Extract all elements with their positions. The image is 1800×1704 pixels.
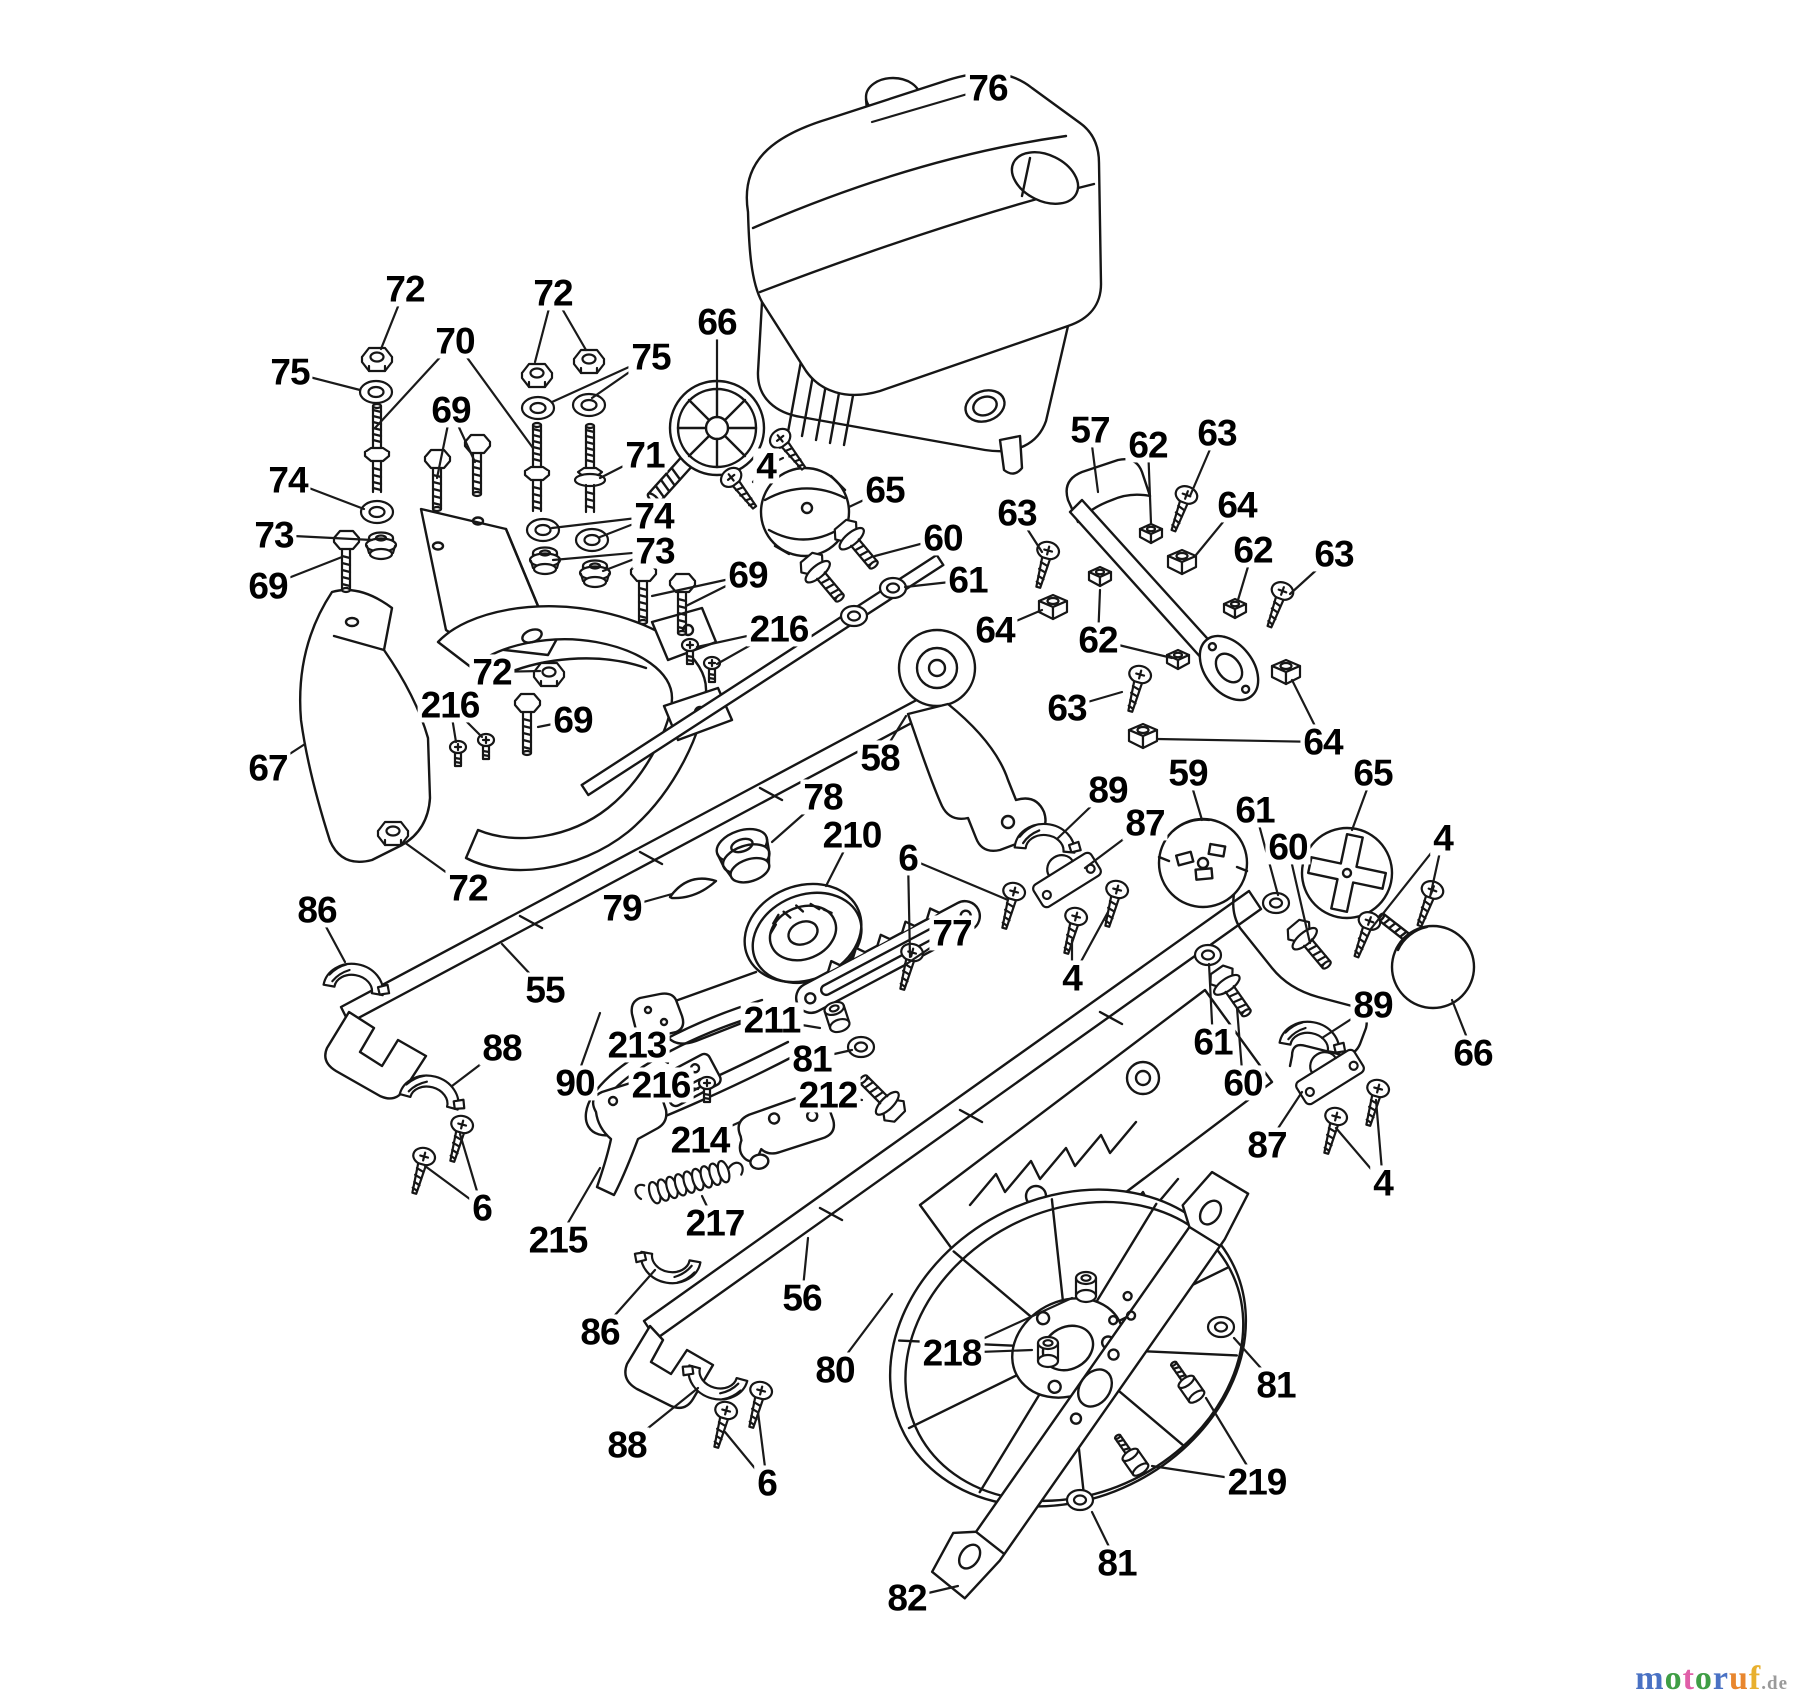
part-label-75: 75 bbox=[267, 354, 312, 389]
part-label-89: 89 bbox=[1350, 987, 1395, 1022]
sqnut64-glyph bbox=[1039, 595, 1067, 619]
part-label-6: 6 bbox=[469, 1190, 495, 1225]
screw-glyph bbox=[1358, 1077, 1391, 1128]
rivet-glyph bbox=[704, 657, 720, 682]
watermark-letter: t bbox=[1683, 1660, 1695, 1697]
part-label-63: 63 bbox=[994, 495, 1039, 530]
sqnut64-glyph bbox=[1272, 660, 1300, 684]
washer_s-glyph bbox=[1067, 1490, 1093, 1510]
grommet-glyph bbox=[366, 533, 396, 560]
watermark-letter: o bbox=[1695, 1660, 1713, 1697]
part-label-72: 72 bbox=[445, 870, 490, 905]
sqnut64-glyph bbox=[1168, 550, 1196, 574]
part-label-76: 76 bbox=[965, 70, 1010, 105]
part-label-73: 73 bbox=[632, 533, 677, 568]
part-label-89: 89 bbox=[1085, 772, 1130, 807]
part-label-66: 66 bbox=[1450, 1035, 1495, 1070]
rivet-glyph bbox=[450, 741, 466, 766]
part-label-64: 64 bbox=[972, 612, 1017, 647]
part-label-72: 72 bbox=[382, 271, 427, 306]
watermark-letter: r bbox=[1713, 1660, 1729, 1697]
sqnut64-glyph bbox=[1129, 724, 1157, 748]
hexnut-glyph bbox=[574, 350, 604, 373]
part-label-216: 216 bbox=[747, 611, 812, 646]
part-label-79: 79 bbox=[599, 890, 644, 925]
part-label-75: 75 bbox=[628, 339, 673, 374]
part-label-80: 80 bbox=[812, 1352, 857, 1387]
part-label-56: 56 bbox=[779, 1280, 824, 1315]
part-label-61: 61 bbox=[1232, 792, 1277, 827]
part-label-77: 77 bbox=[929, 915, 974, 950]
pulley-78 bbox=[713, 823, 779, 889]
part-label-86: 86 bbox=[294, 892, 339, 927]
leader-line bbox=[1157, 739, 1323, 742]
part-label-81: 81 bbox=[1253, 1367, 1298, 1402]
sqnut-glyph bbox=[1224, 599, 1246, 618]
screw-glyph bbox=[1120, 663, 1153, 714]
part-label-59: 59 bbox=[1165, 755, 1210, 790]
screw-glyph bbox=[1316, 1105, 1349, 1156]
part-label-88: 88 bbox=[479, 1030, 524, 1065]
part-label-86: 86 bbox=[577, 1314, 622, 1349]
part-label-61: 61 bbox=[1190, 1024, 1235, 1059]
part-label-211: 211 bbox=[741, 1002, 804, 1037]
part-label-87: 87 bbox=[1122, 805, 1167, 840]
part-label-87: 87 bbox=[1244, 1127, 1289, 1162]
part-label-212: 212 bbox=[796, 1077, 861, 1112]
part-label-70: 70 bbox=[432, 323, 477, 358]
spring-glyph bbox=[634, 1155, 745, 1209]
screw-glyph bbox=[1259, 579, 1296, 630]
part-label-73: 73 bbox=[251, 517, 296, 552]
flangebolt-glyph bbox=[1282, 915, 1340, 976]
part-label-66: 66 bbox=[694, 304, 739, 339]
part-label-65: 65 bbox=[862, 472, 907, 507]
stud71-glyph bbox=[575, 424, 605, 512]
part-label-219: 219 bbox=[1225, 1464, 1290, 1499]
grommet-glyph bbox=[580, 561, 610, 588]
part-label-64: 64 bbox=[1300, 724, 1345, 759]
watermark-letter: f bbox=[1749, 1660, 1761, 1697]
part-label-60: 60 bbox=[920, 520, 965, 555]
part-label-4: 4 bbox=[753, 448, 779, 483]
sqnut-glyph bbox=[1140, 524, 1162, 543]
washer_s-glyph bbox=[880, 578, 906, 598]
part-label-63: 63 bbox=[1044, 690, 1089, 725]
screw-glyph bbox=[1028, 539, 1061, 590]
part-label-218: 218 bbox=[920, 1335, 985, 1370]
hub-59 bbox=[1159, 819, 1247, 907]
part-label-72: 72 bbox=[530, 275, 575, 310]
screw-glyph bbox=[994, 880, 1027, 931]
screw-glyph bbox=[1409, 878, 1446, 929]
engine bbox=[747, 73, 1101, 474]
washer_s-glyph bbox=[841, 606, 867, 626]
hexbolt-glyph bbox=[465, 435, 490, 496]
part-label-60: 60 bbox=[1220, 1065, 1265, 1100]
screw-glyph bbox=[442, 1113, 475, 1164]
diagram-canvas: 7672757072756971747369747366465576263646… bbox=[0, 0, 1800, 1704]
watermark-suffix: .de bbox=[1761, 1673, 1788, 1694]
part-label-4: 4 bbox=[1430, 820, 1456, 855]
part-label-88: 88 bbox=[604, 1427, 649, 1462]
part-label-90: 90 bbox=[552, 1065, 597, 1100]
part-label-215: 215 bbox=[526, 1222, 591, 1257]
part-label-71: 71 bbox=[622, 437, 667, 472]
watermark-letter: o bbox=[1665, 1660, 1683, 1697]
part-label-4: 4 bbox=[1370, 1165, 1396, 1200]
hexbolt-glyph bbox=[631, 563, 656, 624]
part-label-69: 69 bbox=[550, 702, 595, 737]
washer-glyph bbox=[576, 529, 608, 551]
clamp-glyph bbox=[631, 1251, 701, 1288]
part-label-4: 4 bbox=[1059, 960, 1085, 995]
hexnut-glyph bbox=[534, 663, 564, 686]
part-label-217: 217 bbox=[683, 1205, 748, 1240]
key-79 bbox=[670, 879, 716, 898]
part-label-214: 214 bbox=[668, 1122, 733, 1157]
part-label-82: 82 bbox=[884, 1580, 929, 1615]
part-label-61: 61 bbox=[945, 562, 990, 597]
washer_s-glyph bbox=[1208, 1317, 1234, 1337]
sqnut-glyph bbox=[1167, 650, 1189, 669]
screw-glyph bbox=[1163, 483, 1200, 534]
part-label-62: 62 bbox=[1075, 622, 1120, 657]
part-label-65: 65 bbox=[1350, 755, 1395, 790]
washer_s-glyph bbox=[848, 1037, 874, 1057]
sqnut-glyph bbox=[1089, 567, 1111, 586]
washer-glyph bbox=[522, 397, 554, 419]
part-label-62: 62 bbox=[1230, 532, 1275, 567]
arm-58 bbox=[899, 630, 1046, 851]
leader-line bbox=[908, 858, 1008, 900]
watermark-letter: m bbox=[1635, 1660, 1664, 1697]
bushing-glyph bbox=[823, 1000, 851, 1035]
part-label-60: 60 bbox=[1265, 829, 1310, 864]
part-label-6: 6 bbox=[754, 1465, 780, 1500]
part-label-57: 57 bbox=[1067, 412, 1112, 447]
part-label-63: 63 bbox=[1194, 415, 1239, 450]
part-label-55: 55 bbox=[522, 972, 567, 1007]
part-label-69: 69 bbox=[725, 557, 770, 592]
washer_s-glyph bbox=[1263, 893, 1289, 913]
part-label-213: 213 bbox=[605, 1027, 670, 1062]
part-label-216: 216 bbox=[629, 1067, 694, 1102]
part-label-74: 74 bbox=[265, 462, 310, 497]
stud-glyph bbox=[525, 423, 549, 511]
part-label-78: 78 bbox=[800, 779, 845, 814]
part-label-69: 69 bbox=[245, 568, 290, 603]
washer-glyph bbox=[361, 501, 393, 523]
rivet-glyph bbox=[478, 734, 494, 759]
hexnut-glyph bbox=[362, 348, 392, 371]
washer-glyph bbox=[360, 381, 392, 403]
part-label-67: 67 bbox=[245, 750, 290, 785]
part-label-63: 63 bbox=[1311, 536, 1356, 571]
hexbolt-glyph bbox=[425, 450, 450, 511]
washer-glyph bbox=[527, 519, 559, 541]
hexnut-glyph bbox=[522, 364, 552, 387]
part-label-69: 69 bbox=[428, 392, 473, 427]
part-label-74: 74 bbox=[631, 498, 676, 533]
watermark-letter: u bbox=[1729, 1660, 1749, 1697]
part-label-62: 62 bbox=[1125, 427, 1170, 462]
hexbolt-glyph bbox=[515, 694, 540, 755]
part-label-81: 81 bbox=[789, 1041, 834, 1076]
clamp-glyph bbox=[324, 959, 394, 996]
washer_s-glyph bbox=[1195, 945, 1221, 965]
part-label-216: 216 bbox=[418, 687, 483, 722]
part-label-210: 210 bbox=[820, 817, 885, 852]
part-label-64: 64 bbox=[1214, 487, 1259, 522]
part-label-58: 58 bbox=[857, 740, 902, 775]
part-label-6: 6 bbox=[895, 840, 921, 875]
washer-glyph bbox=[573, 394, 605, 416]
watermark-logo: motoruf.de bbox=[1635, 1660, 1788, 1698]
watermark-text: motoruf bbox=[1635, 1660, 1761, 1697]
part-label-81: 81 bbox=[1094, 1545, 1139, 1580]
flangebolt-glyph bbox=[795, 548, 853, 609]
